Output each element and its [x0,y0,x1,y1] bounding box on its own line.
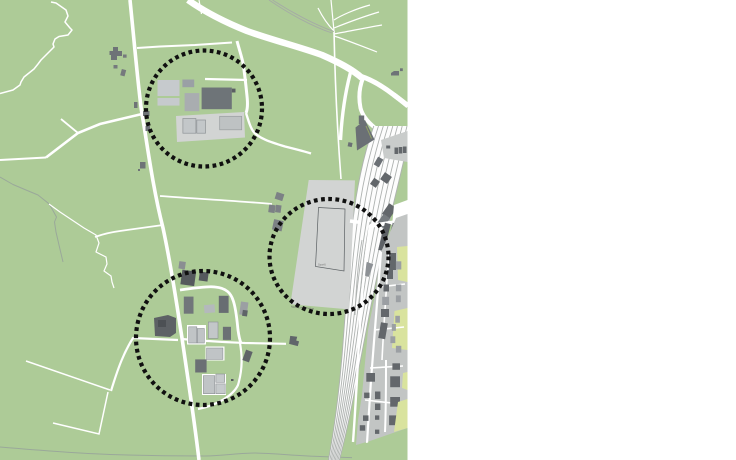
svg-text:Sportfl.: Sportfl. [318,263,326,267]
